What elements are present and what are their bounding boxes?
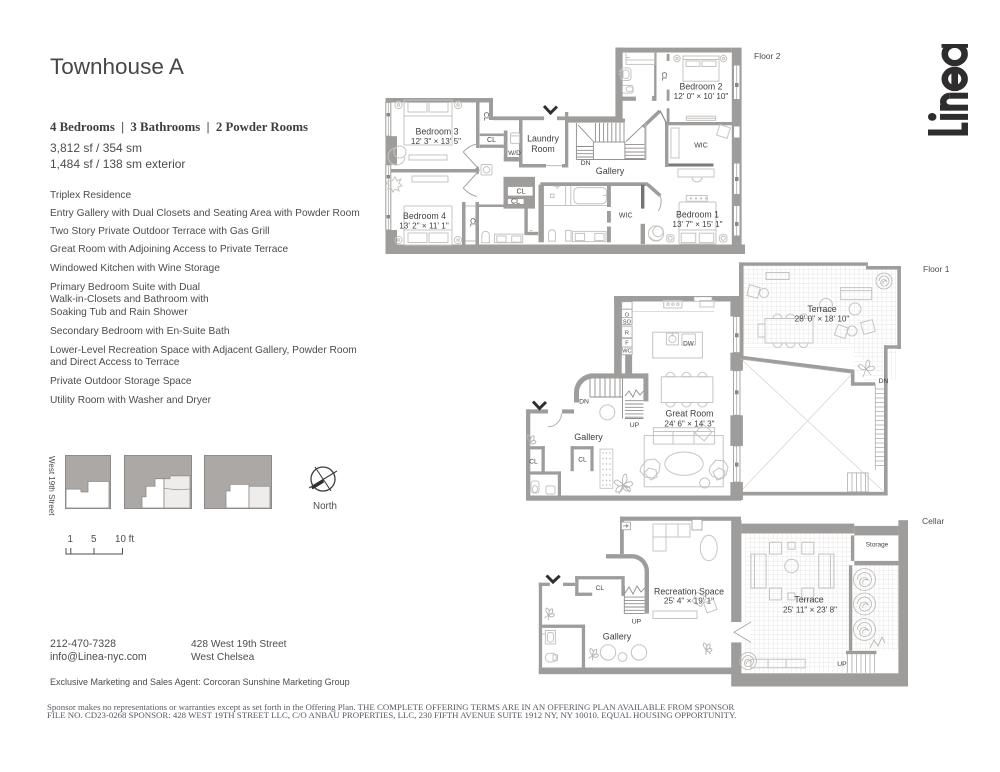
svg-text:24' 6" × 14' 3": 24' 6" × 14' 3" xyxy=(664,420,714,429)
svg-text:F: F xyxy=(625,341,629,347)
svg-text:W/D: W/D xyxy=(508,150,521,157)
svg-text:Recreation Space: Recreation Space xyxy=(654,587,724,597)
svg-text:28' 0" × 18' 10": 28' 0" × 18' 10" xyxy=(795,315,850,324)
svg-text:12' 0" × 10' 10": 12' 0" × 10' 10" xyxy=(674,92,729,101)
svg-text:UP: UP xyxy=(630,422,640,429)
svg-text:13' 2" × 11' 1": 13' 2" × 11' 1" xyxy=(399,221,449,230)
svg-text:13' 7" × 15' 1": 13' 7" × 15' 1" xyxy=(672,220,722,229)
svg-text:DN: DN xyxy=(579,399,589,406)
svg-text:Gallery: Gallery xyxy=(603,631,632,641)
svg-text:25' 11" × 23' 8": 25' 11" × 23' 8" xyxy=(783,606,837,615)
svg-text:DN: DN xyxy=(879,378,889,385)
svg-text:CL: CL xyxy=(487,137,496,144)
svg-text:DN: DN xyxy=(581,160,591,167)
svg-text:DW: DW xyxy=(683,341,695,348)
svg-text:CL: CL xyxy=(517,188,526,195)
svg-text:CL: CL xyxy=(578,457,587,464)
svg-text:CL: CL xyxy=(596,585,605,592)
svg-text:5: 5 xyxy=(91,534,97,545)
svg-text:UP: UP xyxy=(837,661,847,668)
svg-text:WIC: WIC xyxy=(619,213,633,220)
svg-text:Bedroom 4: Bedroom 4 xyxy=(403,211,446,221)
svg-text:12' 3" × 13' 5": 12' 3" × 13' 5" xyxy=(411,137,461,146)
svg-text:CL: CL xyxy=(511,199,520,206)
svg-text:UP: UP xyxy=(632,619,642,626)
svg-text:10 ft: 10 ft xyxy=(115,534,134,545)
svg-text:Bedroom 2: Bedroom 2 xyxy=(679,82,722,92)
svg-text:Terrace: Terrace xyxy=(807,304,836,314)
svg-text:Room: Room xyxy=(531,144,554,154)
svg-text:Terrace: Terrace xyxy=(794,595,823,605)
svg-text:Laundry: Laundry xyxy=(527,133,559,143)
svg-text:25' 4" × 19' 1": 25' 4" × 19' 1" xyxy=(664,596,714,605)
svg-text:CL: CL xyxy=(469,218,476,227)
svg-text:WIC: WIC xyxy=(694,142,708,149)
svg-text:Bedroom 1: Bedroom 1 xyxy=(676,210,719,220)
svg-text:Storage: Storage xyxy=(866,542,889,549)
svg-text:Gallery: Gallery xyxy=(596,166,625,176)
svg-text:O: O xyxy=(625,313,630,319)
svg-text:CL: CL xyxy=(482,112,489,121)
svg-text:R: R xyxy=(625,331,629,337)
svg-text:CL: CL xyxy=(660,72,667,81)
svg-text:SO: SO xyxy=(623,319,632,325)
svg-text:Bedroom 3: Bedroom 3 xyxy=(415,127,458,137)
svg-text:Gallery: Gallery xyxy=(574,432,603,442)
svg-text:1: 1 xyxy=(68,534,73,545)
svg-text:Great Room: Great Room xyxy=(666,409,714,419)
svg-text:WC: WC xyxy=(622,349,631,355)
svg-text:CL: CL xyxy=(529,459,538,466)
